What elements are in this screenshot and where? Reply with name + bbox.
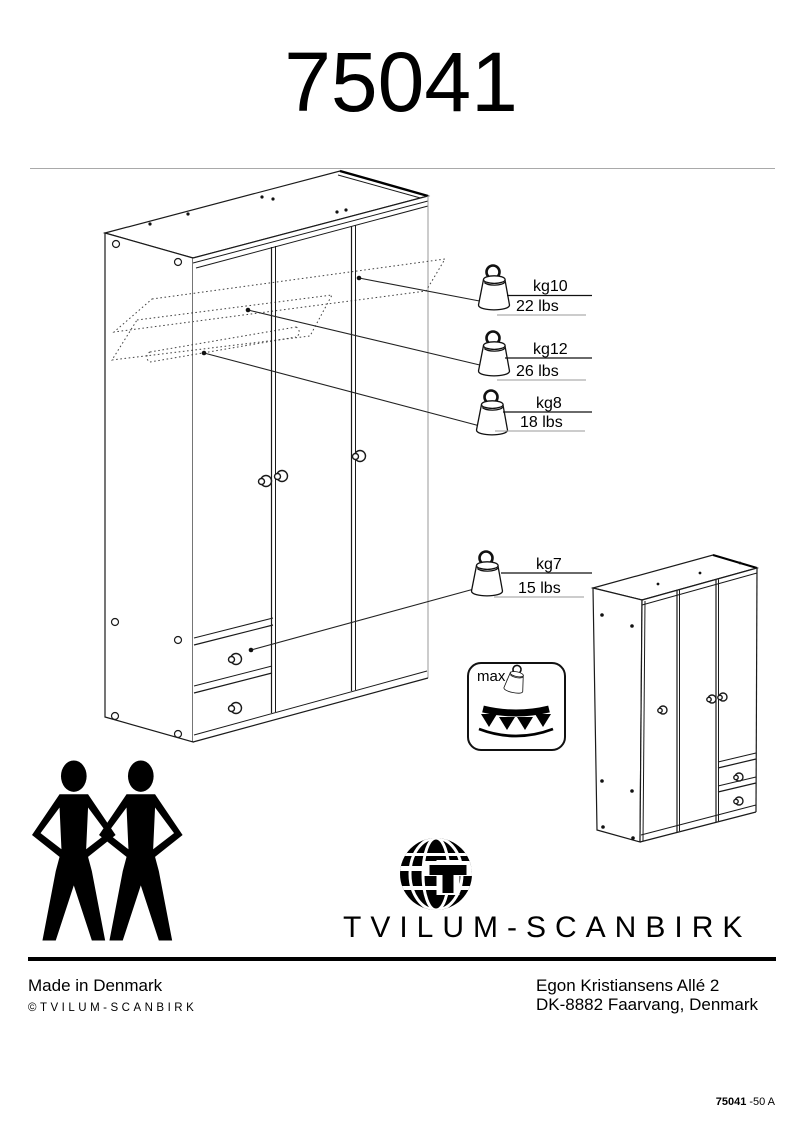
kg10-label: kg10 — [533, 278, 568, 295]
footer-divider — [28, 957, 776, 961]
capacity-kg7: kg7 15 lbs — [472, 552, 593, 598]
two-person-silhouette-icon — [32, 760, 183, 940]
main-wardrobe-drawing — [105, 171, 445, 742]
kg7-label: kg7 — [536, 556, 562, 573]
kg10-lbs-label: 22 lbs — [516, 298, 559, 315]
made-in-text: Made in Denmark — [28, 976, 162, 996]
kg8-label: kg8 — [536, 395, 562, 412]
address-line2: DK-8882 Faarvang, Denmark — [536, 995, 758, 1015]
document-number: 75041-50 A — [716, 1096, 775, 1108]
max-label: max. — [477, 668, 510, 685]
address-line1: Egon Kristiansens Allé 2 — [536, 976, 719, 996]
capacity-kg8: kg8 18 lbs — [477, 391, 593, 435]
assembly-instructions-page: 75041 — [0, 0, 802, 1134]
document-revision: -50 A — [749, 1096, 775, 1108]
kg7-lbs-label: 15 lbs — [518, 580, 561, 597]
capacity-kg12: kg12 26 lbs — [479, 332, 593, 381]
capacity-kg10: kg10 22 lbs — [479, 266, 593, 316]
copyright-text: ©TVILUM-SCANBIRK — [28, 1002, 197, 1014]
brand-name: TVILUM-SCANBIRK — [343, 911, 751, 945]
assembled-wardrobe-drawing — [593, 555, 757, 842]
kg8-lbs-label: 18 lbs — [520, 414, 563, 431]
kg12-label: kg12 — [533, 341, 568, 358]
kg12-lbs-label: 26 lbs — [516, 363, 559, 380]
max-load-pictogram: max. — [468, 663, 565, 750]
globe-icon — [398, 838, 474, 910]
instruction-illustration: kg10 22 lbs kg12 26 lbs kg8 18 lbs kg7 1… — [0, 0, 802, 1134]
document-code: 75041 — [716, 1096, 747, 1108]
